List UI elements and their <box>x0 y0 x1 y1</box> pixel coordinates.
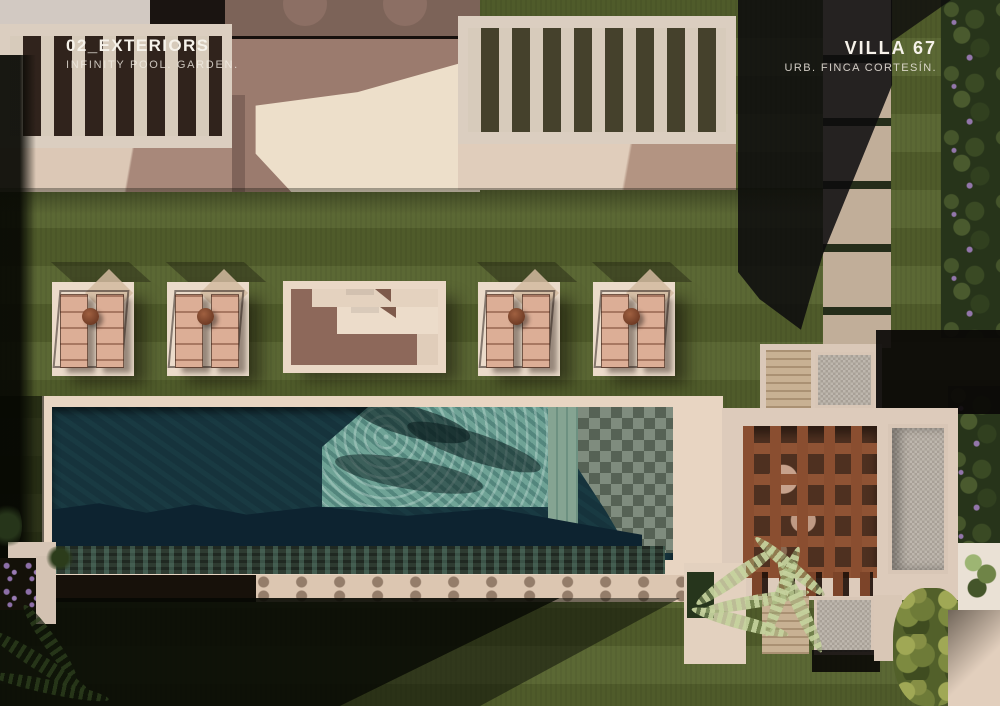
lounger-pad-1 <box>52 282 134 376</box>
section-title: 02_EXTERIORS <box>66 36 239 56</box>
deck-walkway <box>256 575 723 602</box>
section-title-block: 02_EXTERIORS INFINITY POOL. GARDEN. <box>66 36 239 71</box>
platform-step-upper <box>312 289 438 307</box>
gravel-pit-shadow <box>812 650 880 672</box>
side-table <box>82 308 99 325</box>
villa-exterior-render: 02_EXTERIORS INFINITY POOL. GARDEN. VILL… <box>0 0 1000 706</box>
lounger-pad-3 <box>478 282 560 376</box>
hedge-right-upper <box>941 0 1000 338</box>
pool-water <box>52 407 673 560</box>
balcony-right-wall <box>458 144 736 190</box>
sun-lounger <box>96 294 124 368</box>
sun-lounger <box>175 294 203 368</box>
project-title: VILLA 67 <box>785 38 937 59</box>
gravel-strip-right <box>888 424 948 574</box>
shrub-sprig <box>44 546 76 570</box>
planter-plant <box>960 546 998 602</box>
lounger-pad-4 <box>593 282 675 376</box>
sun-lounger <box>211 294 239 368</box>
gravel-court-upper <box>815 352 874 408</box>
step-notch <box>346 289 374 295</box>
travertine-wall-upper <box>766 350 811 408</box>
platform-corner-step <box>417 334 438 365</box>
sunken-lounge-platform <box>283 281 446 373</box>
sun-lounger <box>637 294 665 368</box>
section-subtitle: INFINITY POOL. GARDEN. <box>66 59 239 71</box>
pavilion-cast-shadow <box>876 330 1000 414</box>
infinity-edge <box>52 546 665 574</box>
sun-lounger <box>601 294 629 368</box>
side-table <box>508 308 525 325</box>
side-table <box>623 308 640 325</box>
balcony-right-railing <box>458 16 736 144</box>
step-notch <box>351 307 379 313</box>
pool-steps <box>548 407 578 525</box>
deck-shadowed <box>42 575 256 602</box>
deck-bottom-right <box>948 610 1000 706</box>
terrace-floor <box>225 0 480 192</box>
terrace-roof-overhang <box>225 0 480 38</box>
sun-lounger <box>486 294 514 368</box>
sun-lounger <box>60 294 88 368</box>
glass-edge-line <box>225 36 480 39</box>
flower-planter-pit <box>0 558 36 610</box>
side-table <box>197 308 214 325</box>
project-title-block: VILLA 67 URB. FINCA CORTESÍN. <box>785 38 937 74</box>
gravel-court-lower <box>814 597 874 655</box>
lawn-shadow-under-house <box>0 188 823 214</box>
sun-lounger <box>522 294 550 368</box>
project-subtitle: URB. FINCA CORTESÍN. <box>785 62 937 74</box>
lounger-pad-2 <box>167 282 249 376</box>
